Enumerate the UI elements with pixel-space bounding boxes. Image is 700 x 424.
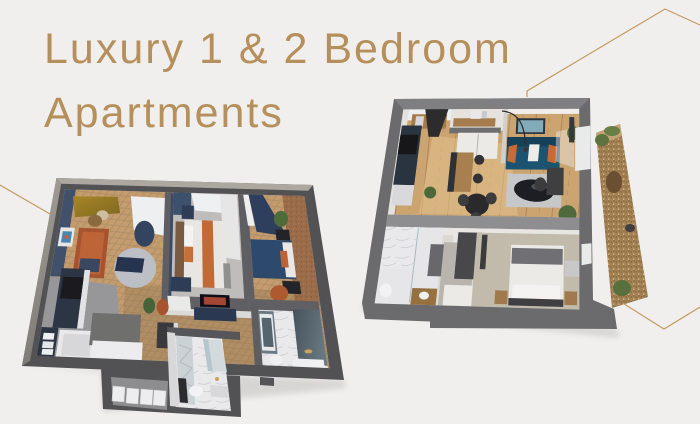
- svg-text:Luxury 1 & 2 Bedroom: Luxury 1 & 2 Bedroom: [44, 25, 512, 73]
- svg-text:Apartments: Apartments: [44, 89, 284, 137]
